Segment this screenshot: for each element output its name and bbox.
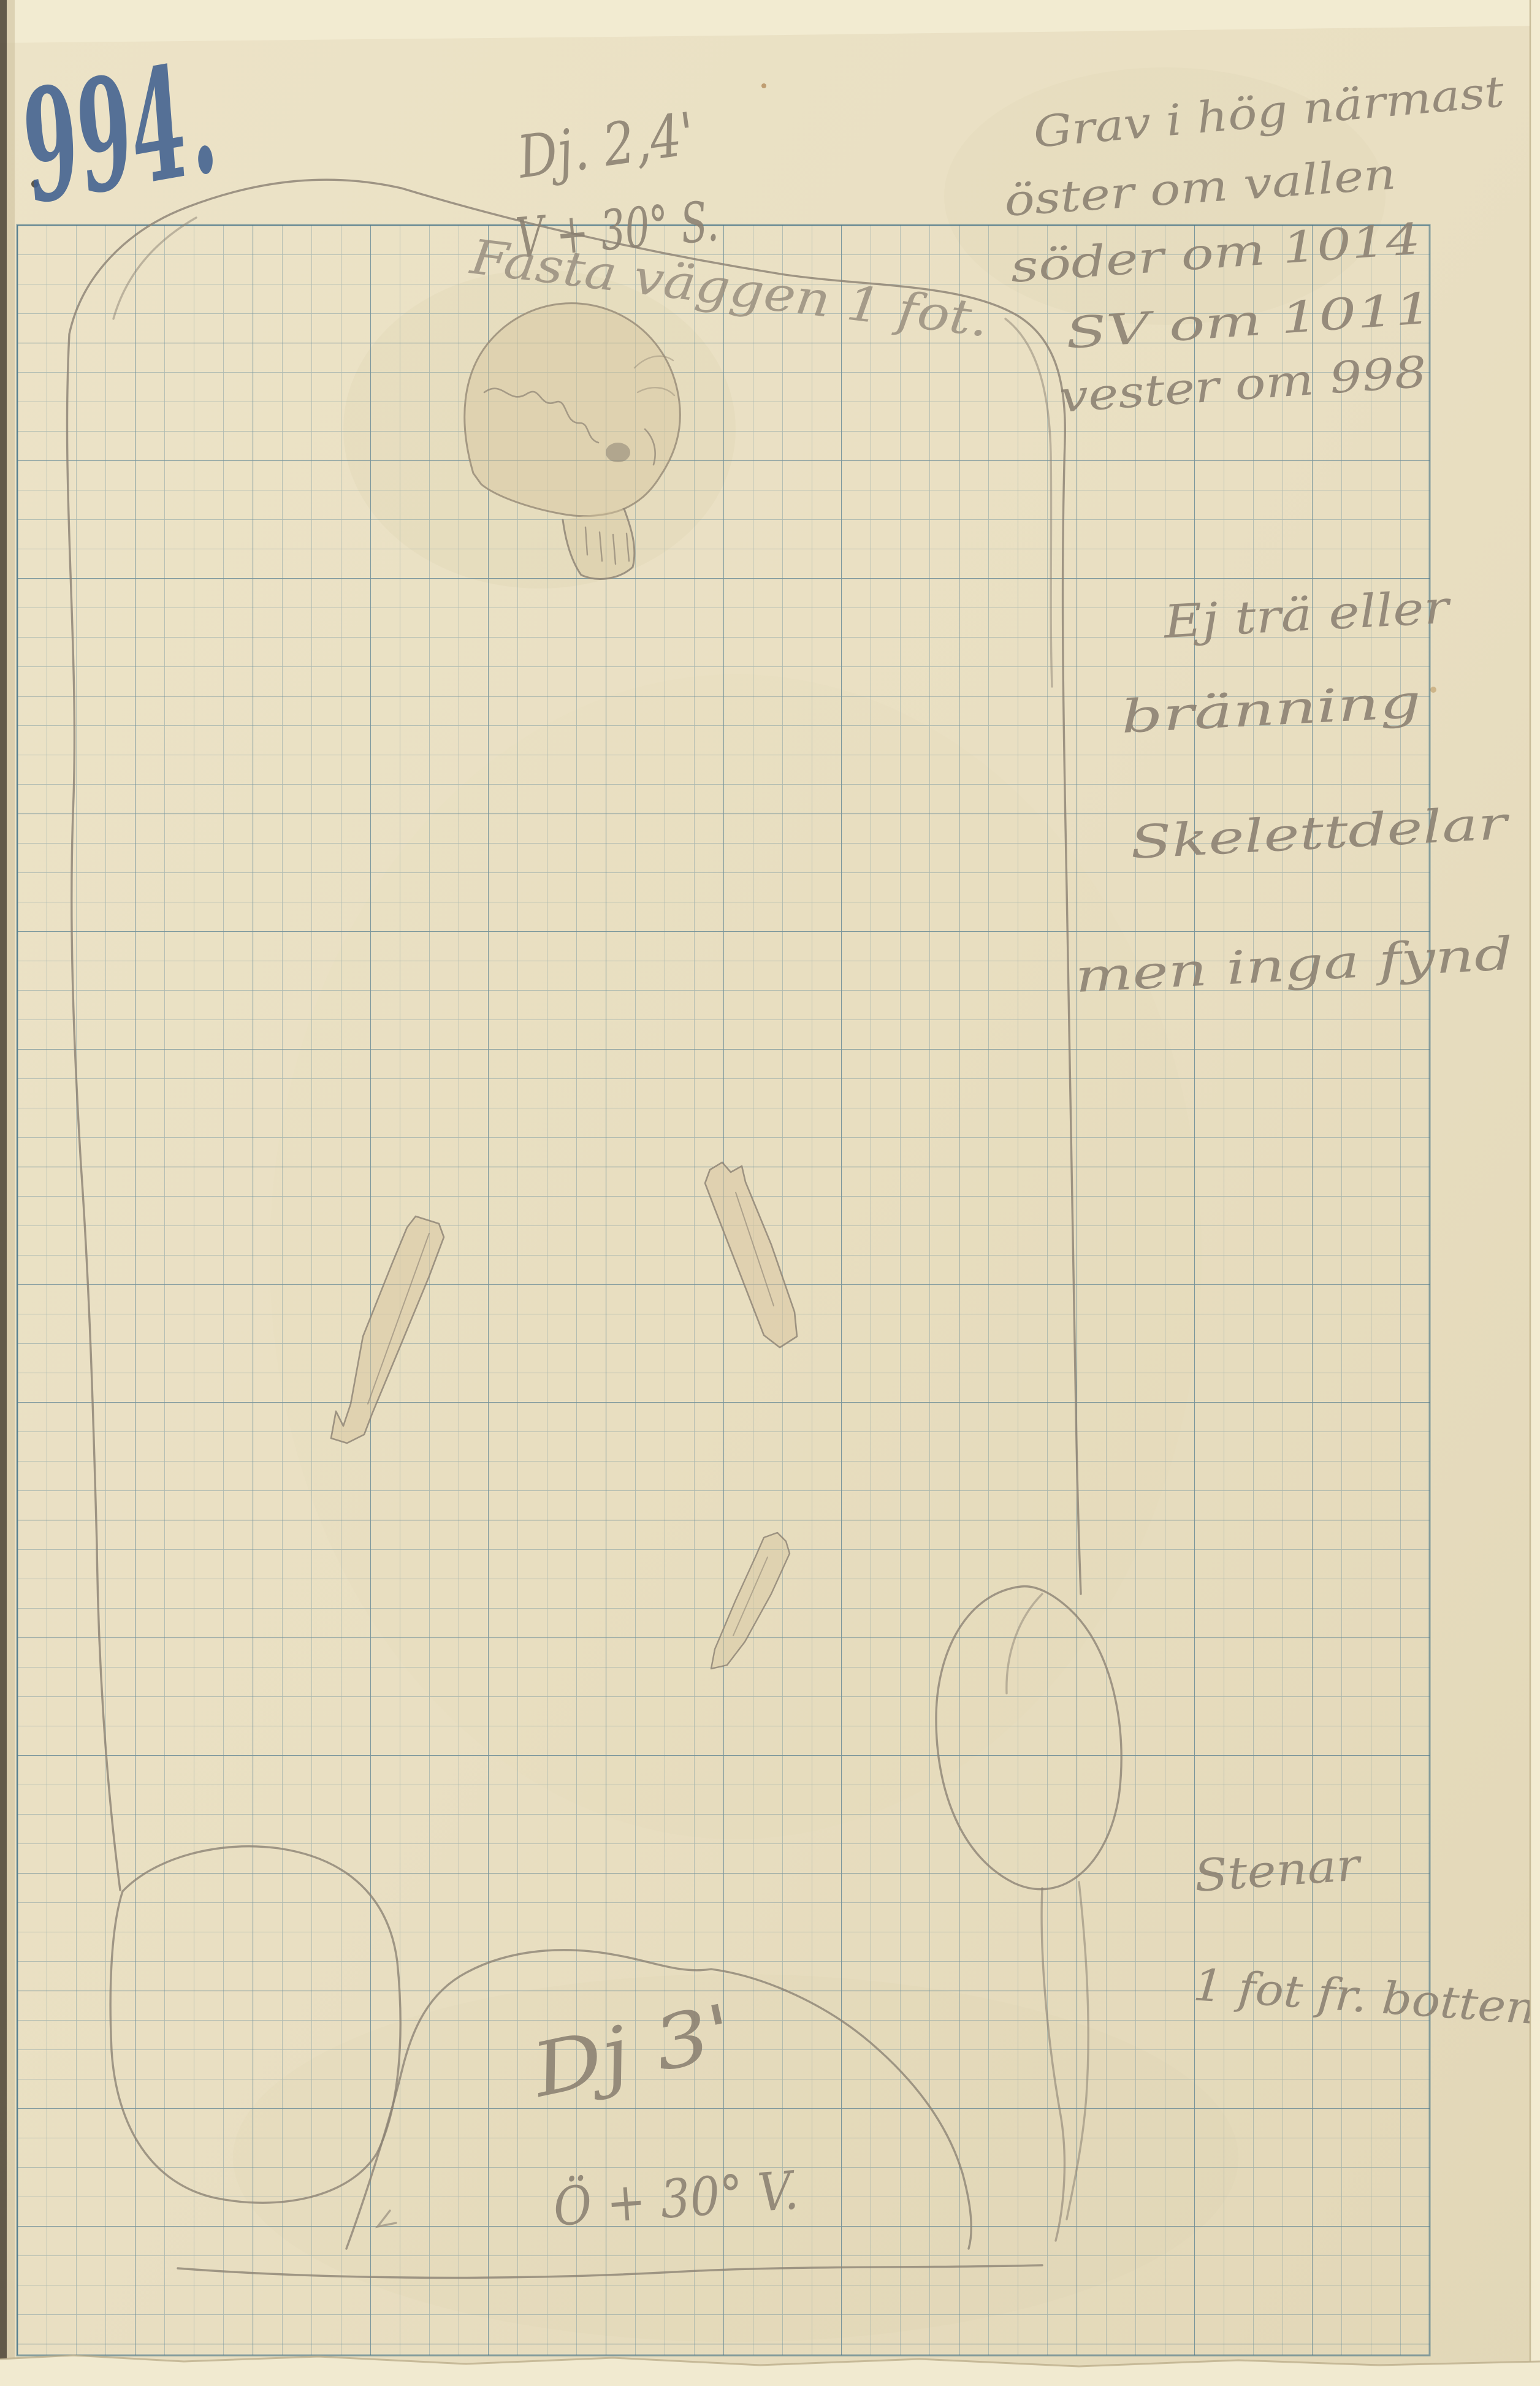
right-paper-edge	[1530, 0, 1540, 2386]
drawing-canvas: 994. Dj. 2,4' V + 30° S. Fasta väggen 1 …	[0, 0, 1540, 2386]
left-scan-edge	[0, 0, 7, 2386]
page-number: 994.	[9, 28, 227, 238]
scanned-field-drawing-page: 994. Dj. 2,4' V + 30° S. Fasta väggen 1 …	[0, 0, 1540, 2386]
